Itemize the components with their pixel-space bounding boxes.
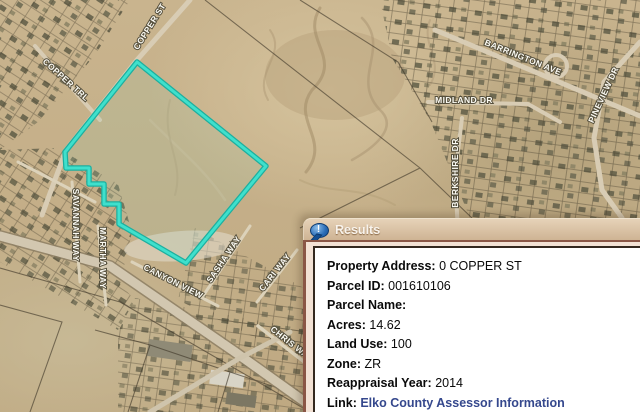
- speech-bubble-exclamation-icon: !: [310, 223, 328, 238]
- assessor-information-link[interactable]: Elko County Assessor Information: [360, 396, 564, 410]
- field-land-use: Land Use: 100: [327, 335, 630, 355]
- results-content: Property Address: 0 COPPER ST Parcel ID:…: [313, 246, 640, 412]
- street-label-savannah-way: SAVANNAH WAY: [71, 189, 81, 262]
- street-label-midland-dr: MIDLAND DR: [435, 95, 493, 105]
- field-property-address: Property Address: 0 COPPER ST: [327, 257, 630, 277]
- street-label-berkshire-dr: BERKSHIRE DR: [450, 138, 460, 208]
- field-parcel-id: Parcel ID: 001610106: [327, 277, 630, 297]
- street-label-martha-way: MARTHA WAY: [98, 227, 108, 288]
- field-zone: Zone: ZR: [327, 355, 630, 375]
- results-panel: ! Results Property Address: 0 COPPER ST …: [303, 218, 640, 412]
- field-link: Link: Elko County Assessor Information: [327, 394, 630, 412]
- field-reappraisal-year: Reappraisal Year: 2014: [327, 374, 630, 394]
- svg-text:MARTHA WAY: MARTHA WAY: [98, 227, 108, 288]
- svg-text:SAVANNAH WAY: SAVANNAH WAY: [71, 189, 81, 262]
- results-panel-title: Results: [335, 223, 380, 237]
- svg-text:MIDLAND DR: MIDLAND DR: [435, 95, 493, 105]
- results-panel-body: Property Address: 0 COPPER ST Parcel ID:…: [303, 240, 640, 412]
- svg-text:BERKSHIRE DR: BERKSHIRE DR: [450, 138, 460, 208]
- results-panel-header[interactable]: ! Results: [303, 218, 640, 241]
- gis-viewer: COPPER ST COPPER TRL BARRINGTON AVE MIDL…: [0, 0, 640, 412]
- field-acres: Acres: 14.62: [327, 316, 630, 336]
- field-parcel-name: Parcel Name:: [327, 296, 630, 316]
